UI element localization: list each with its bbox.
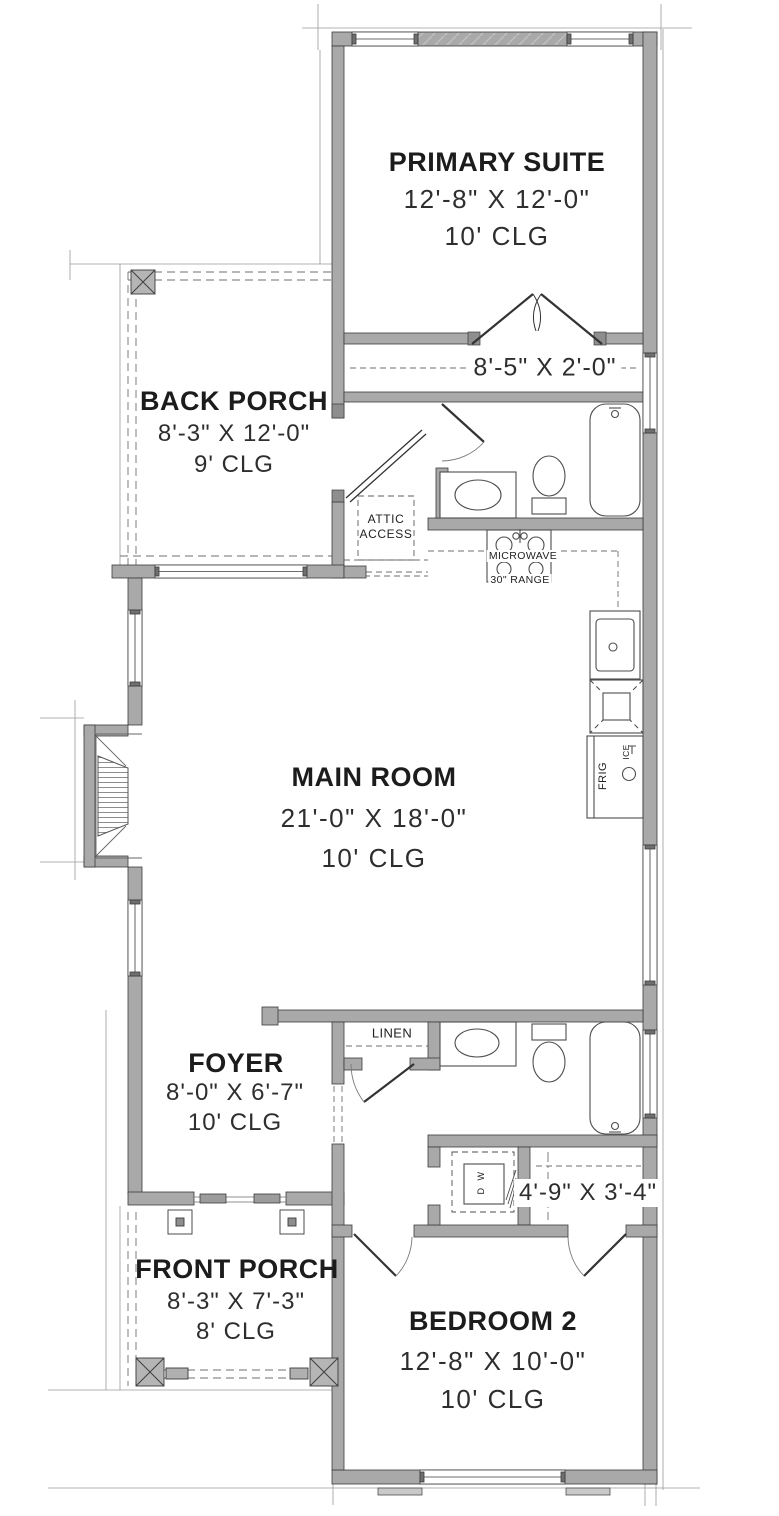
room-dims-foyer: 8'-0" X 6'-7" xyxy=(166,1079,304,1107)
linen-label: LINEN xyxy=(370,1026,414,1041)
window xyxy=(128,610,142,686)
window xyxy=(643,1030,657,1118)
window xyxy=(643,845,657,985)
room-ceiling-bedroom-2: 10' CLG xyxy=(440,1384,545,1415)
room-label-front-porch: FRONT PORCH xyxy=(135,1254,339,1285)
x-post xyxy=(310,1358,338,1386)
cabinet-x-box xyxy=(590,680,643,733)
fridge-label: FRIG xyxy=(597,760,609,792)
bathtub-icon xyxy=(590,1022,640,1134)
dryer-label: D xyxy=(476,1186,486,1197)
front-door xyxy=(194,1194,286,1203)
attic-access-line1: ATTIC xyxy=(368,512,405,526)
floor-plan-page: PRIMARY SUITE 12'-8" X 12'-0" 10' CLG BA… xyxy=(0,0,779,1516)
square-post xyxy=(280,1210,304,1234)
primary-closet-dims: 8'-5" X 2'-0" xyxy=(468,354,621,383)
room-label-foyer: FOYER xyxy=(188,1048,284,1079)
room-label-bedroom-2: BEDROOM 2 xyxy=(409,1306,577,1337)
window-sills xyxy=(378,1488,610,1495)
kitchen-sink-icon xyxy=(590,611,640,679)
fridge-icon xyxy=(587,736,643,818)
ice-label: ICE xyxy=(621,742,631,761)
room-ceiling-primary-suite: 10' CLG xyxy=(444,221,549,252)
bedroom2-closet-door xyxy=(568,1234,626,1276)
closet-double-doors xyxy=(472,294,602,344)
range-label: 30" RANGE xyxy=(488,574,551,586)
toilet-icon xyxy=(532,1024,566,1082)
room-dims-back-porch: 8'-3" X 12'-0" xyxy=(158,420,310,448)
x-post xyxy=(131,270,155,294)
bathtub-icon xyxy=(590,404,640,516)
firebox-hatch xyxy=(98,756,128,836)
room-label-primary-suite: PRIMARY SUITE xyxy=(389,147,606,178)
vanity-sink-icon xyxy=(440,1022,516,1066)
primary-bath-fixtures xyxy=(440,404,640,518)
window xyxy=(420,1470,565,1484)
room-label-main-room: MAIN ROOM xyxy=(292,762,457,793)
window xyxy=(352,32,418,46)
room-ceiling-back-porch: 9' CLG xyxy=(194,451,274,479)
room-dims-main-room: 21'-0" X 18'-0" xyxy=(281,803,468,834)
room-dims-primary-suite: 12'-8" X 12'-0" xyxy=(404,184,591,215)
square-post xyxy=(168,1210,192,1234)
bedroom2-closet-dims: 4'-9" X 3'-4" xyxy=(514,1179,662,1207)
vanity-sink-icon xyxy=(440,472,516,518)
room-ceiling-main-room: 10' CLG xyxy=(321,843,426,874)
floor-plan-drawing xyxy=(0,0,779,1516)
window xyxy=(128,900,142,976)
hall-bath-fixtures xyxy=(440,1022,640,1134)
bedroom2-entry-door xyxy=(354,1234,412,1276)
top-wall-hatch xyxy=(418,33,567,45)
kitchen-fixtures xyxy=(487,529,643,818)
primary-bath-door xyxy=(442,404,484,461)
window xyxy=(643,353,657,433)
window xyxy=(155,565,307,578)
room-dims-front-porch: 8'-3" X 7'-3" xyxy=(167,1288,305,1316)
attic-access-label: ATTIC ACCESS xyxy=(360,512,413,542)
toilet-icon xyxy=(532,456,566,514)
washer-label: W xyxy=(476,1170,486,1183)
room-dims-bedroom-2: 12'-8" X 10'-0" xyxy=(400,1346,587,1377)
window xyxy=(567,32,633,46)
room-label-back-porch: BACK PORCH xyxy=(140,386,328,417)
x-post xyxy=(136,1358,164,1386)
fireplace xyxy=(96,734,142,858)
back-door xyxy=(346,430,426,502)
attic-access-line2: ACCESS xyxy=(360,527,413,541)
microwave-label: MICROWAVE xyxy=(487,550,559,562)
room-ceiling-foyer: 10' CLG xyxy=(188,1109,282,1137)
room-ceiling-front-porch: 8' CLG xyxy=(196,1318,276,1346)
